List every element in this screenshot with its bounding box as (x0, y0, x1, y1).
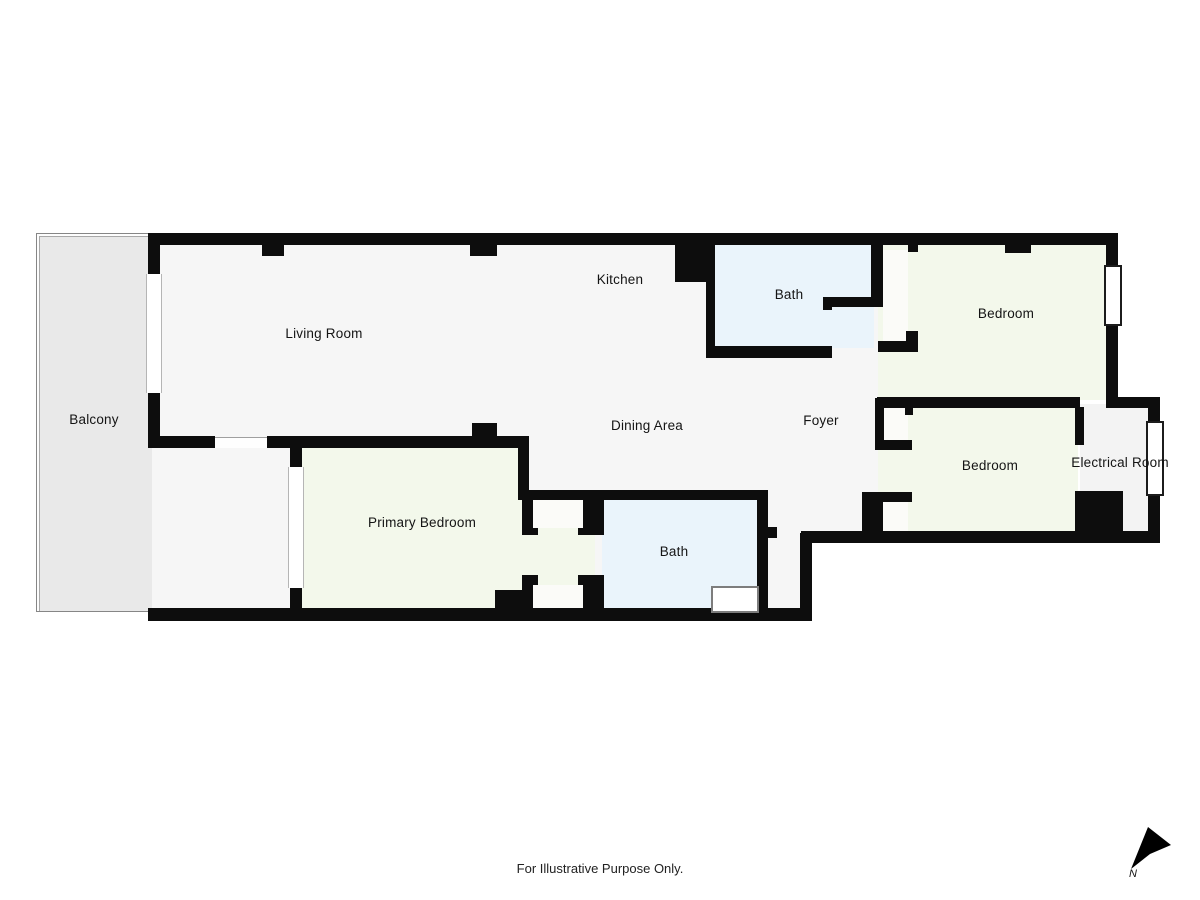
room-label-electrical-room: Electrical Room (1071, 455, 1169, 470)
bedroom-br-closet-2 (883, 502, 908, 533)
room-label-bath-top: Bath (775, 287, 804, 302)
wall-segment (148, 233, 1118, 245)
wall-segment (470, 245, 497, 256)
wall-segment (290, 448, 302, 467)
wall-segment (862, 492, 883, 535)
wall-segment (877, 397, 1080, 408)
wall-segment (522, 575, 538, 585)
wall-segment (593, 500, 604, 535)
disclaimer-text: For Illustrative Purpose Only. (517, 861, 684, 876)
room-label-living-room: Living Room (285, 326, 362, 341)
wall-segment (148, 233, 160, 274)
balcony-door-opening (215, 437, 267, 448)
wall-segment (871, 233, 883, 307)
wall-segment (1005, 245, 1031, 253)
wall-segment (908, 245, 918, 252)
bedroom-tr-entry-alcove (883, 250, 908, 341)
wall-segment (800, 533, 812, 621)
wall-segment (1148, 496, 1160, 543)
wall-segment (768, 527, 777, 538)
room-label-foyer: Foyer (803, 413, 839, 428)
wall-segment (1075, 491, 1123, 533)
living-room-balcony-window (146, 274, 162, 393)
room-label-balcony: Balcony (69, 412, 118, 427)
room-label-bath-bottom: Bath (660, 544, 689, 559)
wall-segment (148, 436, 215, 448)
wall-segment (906, 331, 918, 352)
wall-segment (1075, 407, 1084, 445)
primary-bedroom-balcony-window (288, 467, 304, 588)
shower-pan (711, 586, 759, 613)
room-label-dining-area: Dining Area (611, 418, 683, 433)
wall-segment (1106, 233, 1118, 265)
room-label-primary-bedroom: Primary Bedroom (368, 515, 476, 530)
wall-segment (472, 423, 497, 436)
wall-segment (883, 492, 912, 502)
room-label-bedroom-top-right: Bedroom (978, 306, 1034, 321)
wall-segment (1106, 326, 1118, 408)
wall-segment (522, 490, 768, 500)
room-label-kitchen: Kitchen (597, 272, 643, 287)
room-label-bedroom-bottom-right: Bedroom (962, 458, 1018, 473)
wall-segment (706, 346, 832, 358)
wall-segment (706, 245, 715, 348)
bedroom-top-right-window (1104, 265, 1122, 326)
wall-segment (823, 297, 832, 310)
floor-plan: Balcony Living Room Kitchen Bath Bedroom… (0, 0, 1200, 900)
wall-segment (262, 245, 284, 256)
north-label: N (1129, 868, 1137, 880)
wall-segment (267, 436, 529, 448)
north-compass: N (1118, 816, 1188, 888)
wall-segment (883, 440, 912, 450)
wall-segment (522, 528, 538, 535)
wall-segment (905, 408, 913, 415)
wall-segment (593, 575, 604, 620)
hall-closet-upper (533, 500, 583, 528)
